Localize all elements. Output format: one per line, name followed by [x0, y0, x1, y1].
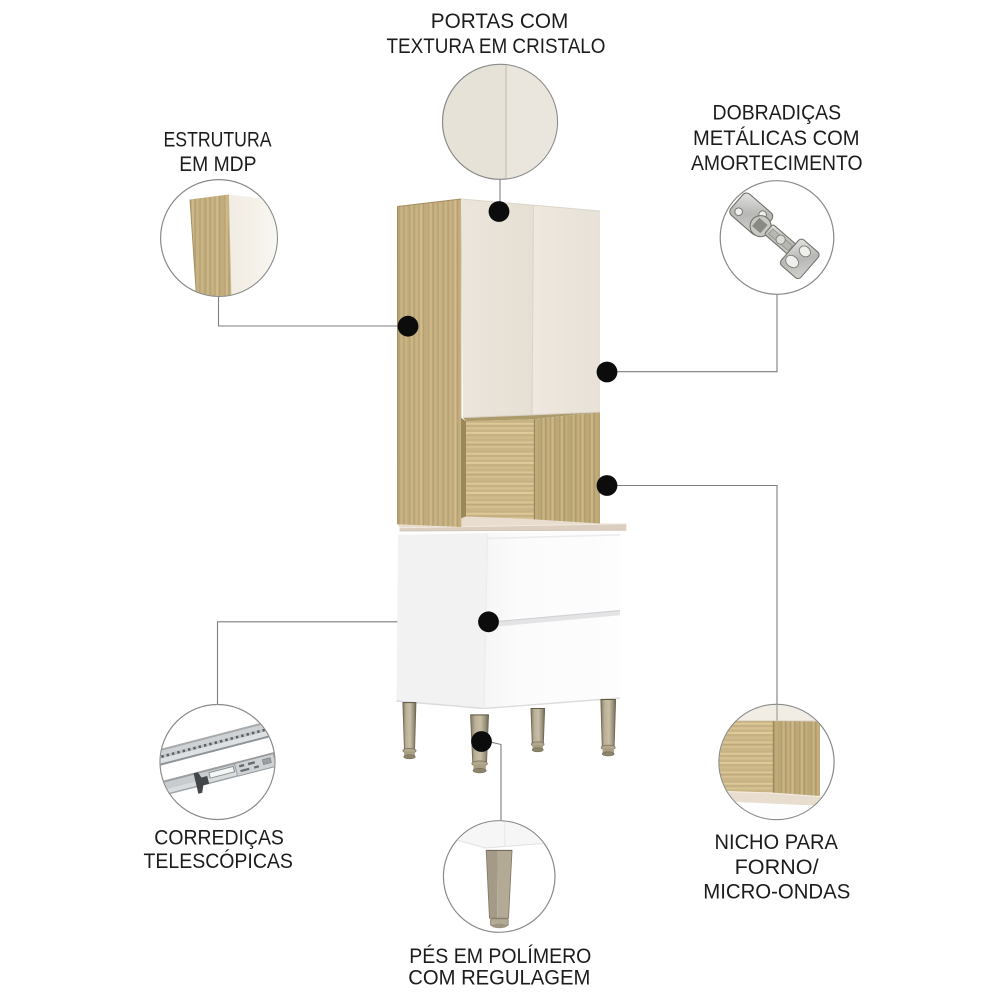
- svg-text:NICHO PARA: NICHO PARA: [715, 829, 839, 854]
- svg-text:COM REGULAGEM: COM REGULAGEM: [408, 965, 590, 990]
- svg-text:ESTRUTURA: ESTRUTURA: [164, 126, 272, 151]
- svg-text:METÁLICAS COM: METÁLICAS COM: [693, 125, 860, 150]
- svg-text:FORNO/: FORNO/: [735, 854, 819, 879]
- svg-text:PORTAS COM: PORTAS COM: [431, 8, 569, 33]
- svg-text:AMORTECIMENTO: AMORTECIMENTO: [691, 150, 863, 175]
- svg-text:TELESCÓPICAS: TELESCÓPICAS: [144, 848, 293, 873]
- svg-text:DOBRADIÇAS: DOBRADIÇAS: [713, 99, 842, 124]
- svg-text:MICRO-ONDAS: MICRO-ONDAS: [703, 879, 850, 904]
- svg-text:TEXTURA EM CRISTALO: TEXTURA EM CRISTALO: [387, 33, 606, 58]
- svg-text:CORREDIÇAS: CORREDIÇAS: [154, 824, 284, 849]
- svg-text:EM MDP: EM MDP: [179, 151, 256, 176]
